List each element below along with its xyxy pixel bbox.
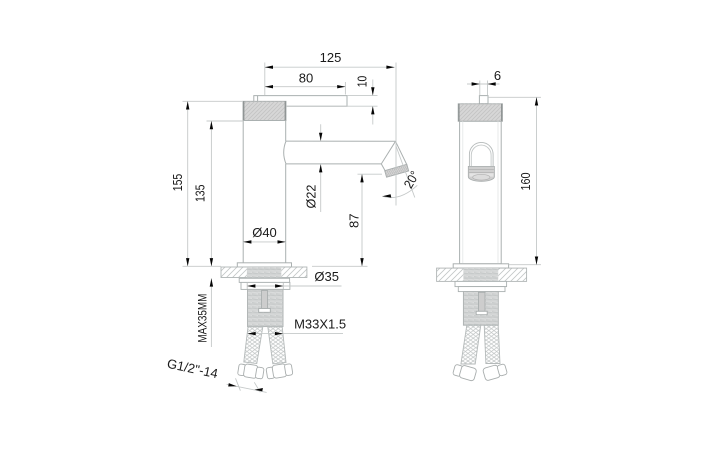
svg-text:80: 80 [299,71,313,86]
svg-text:MAX35MM: MAX35MM [198,294,210,343]
svg-text:87: 87 [346,213,361,228]
svg-text:135: 135 [193,185,208,203]
svg-text:Ø35: Ø35 [314,269,339,284]
svg-text:160: 160 [518,173,533,191]
svg-text:G1/2"-14: G1/2"-14 [166,356,220,381]
svg-text:Ø22: Ø22 [303,185,318,209]
svg-text:6: 6 [494,68,501,83]
svg-text:Ø40: Ø40 [252,225,277,240]
svg-text:155: 155 [170,174,185,192]
svg-text:10: 10 [355,76,370,88]
svg-text:M33X1.5: M33X1.5 [294,316,346,331]
svg-text:125: 125 [320,50,342,65]
